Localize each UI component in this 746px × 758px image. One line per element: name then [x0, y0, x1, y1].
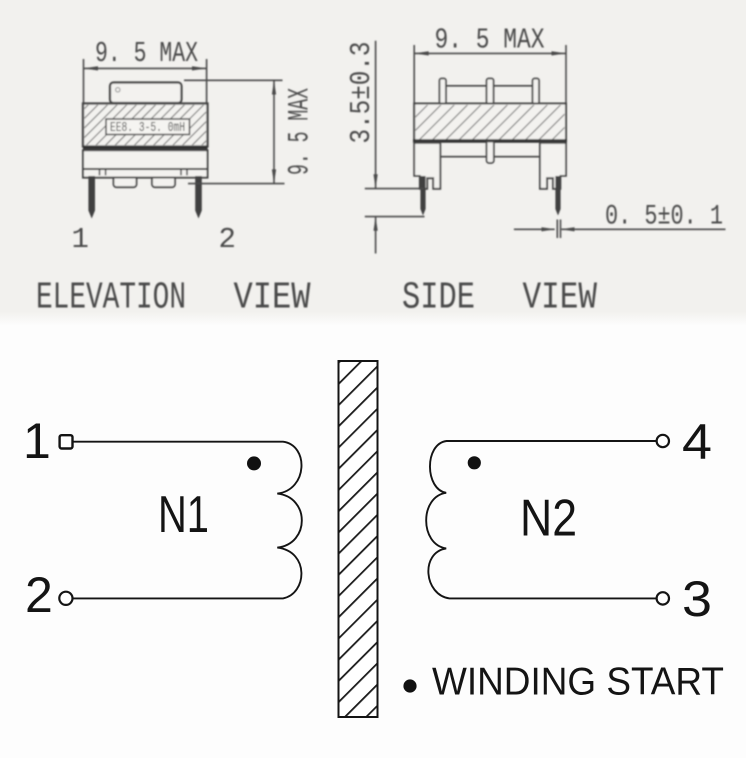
- svg-text:1: 1: [72, 223, 89, 256]
- svg-text:9. 5 MAX: 9. 5 MAX: [435, 24, 545, 57]
- svg-text:N2: N2: [520, 490, 577, 548]
- svg-text:WINDING START: WINDING START: [432, 660, 724, 703]
- svg-text:VIEW: VIEW: [523, 277, 598, 320]
- svg-text:9. 5 MAX: 9. 5 MAX: [284, 88, 318, 175]
- svg-text:0. 5±0. 1: 0. 5±0. 1: [605, 202, 723, 233]
- svg-text:EE8. 3-5. 0mH: EE8. 3-5. 0mH: [110, 120, 185, 136]
- svg-text:N1: N1: [158, 486, 209, 544]
- svg-text:9. 5 MAX: 9. 5 MAX: [95, 37, 198, 70]
- svg-text:VIEW: VIEW: [234, 277, 311, 320]
- svg-text:3.5±0.3: 3.5±0.3: [345, 42, 378, 144]
- svg-text:SIDE: SIDE: [402, 277, 475, 320]
- svg-text:4: 4: [682, 414, 712, 470]
- svg-text:2: 2: [219, 223, 236, 256]
- svg-text:3: 3: [682, 571, 712, 627]
- svg-text:1: 1: [23, 413, 51, 469]
- svg-text:ELEVATION: ELEVATION: [36, 277, 186, 320]
- svg-text:2: 2: [25, 567, 53, 623]
